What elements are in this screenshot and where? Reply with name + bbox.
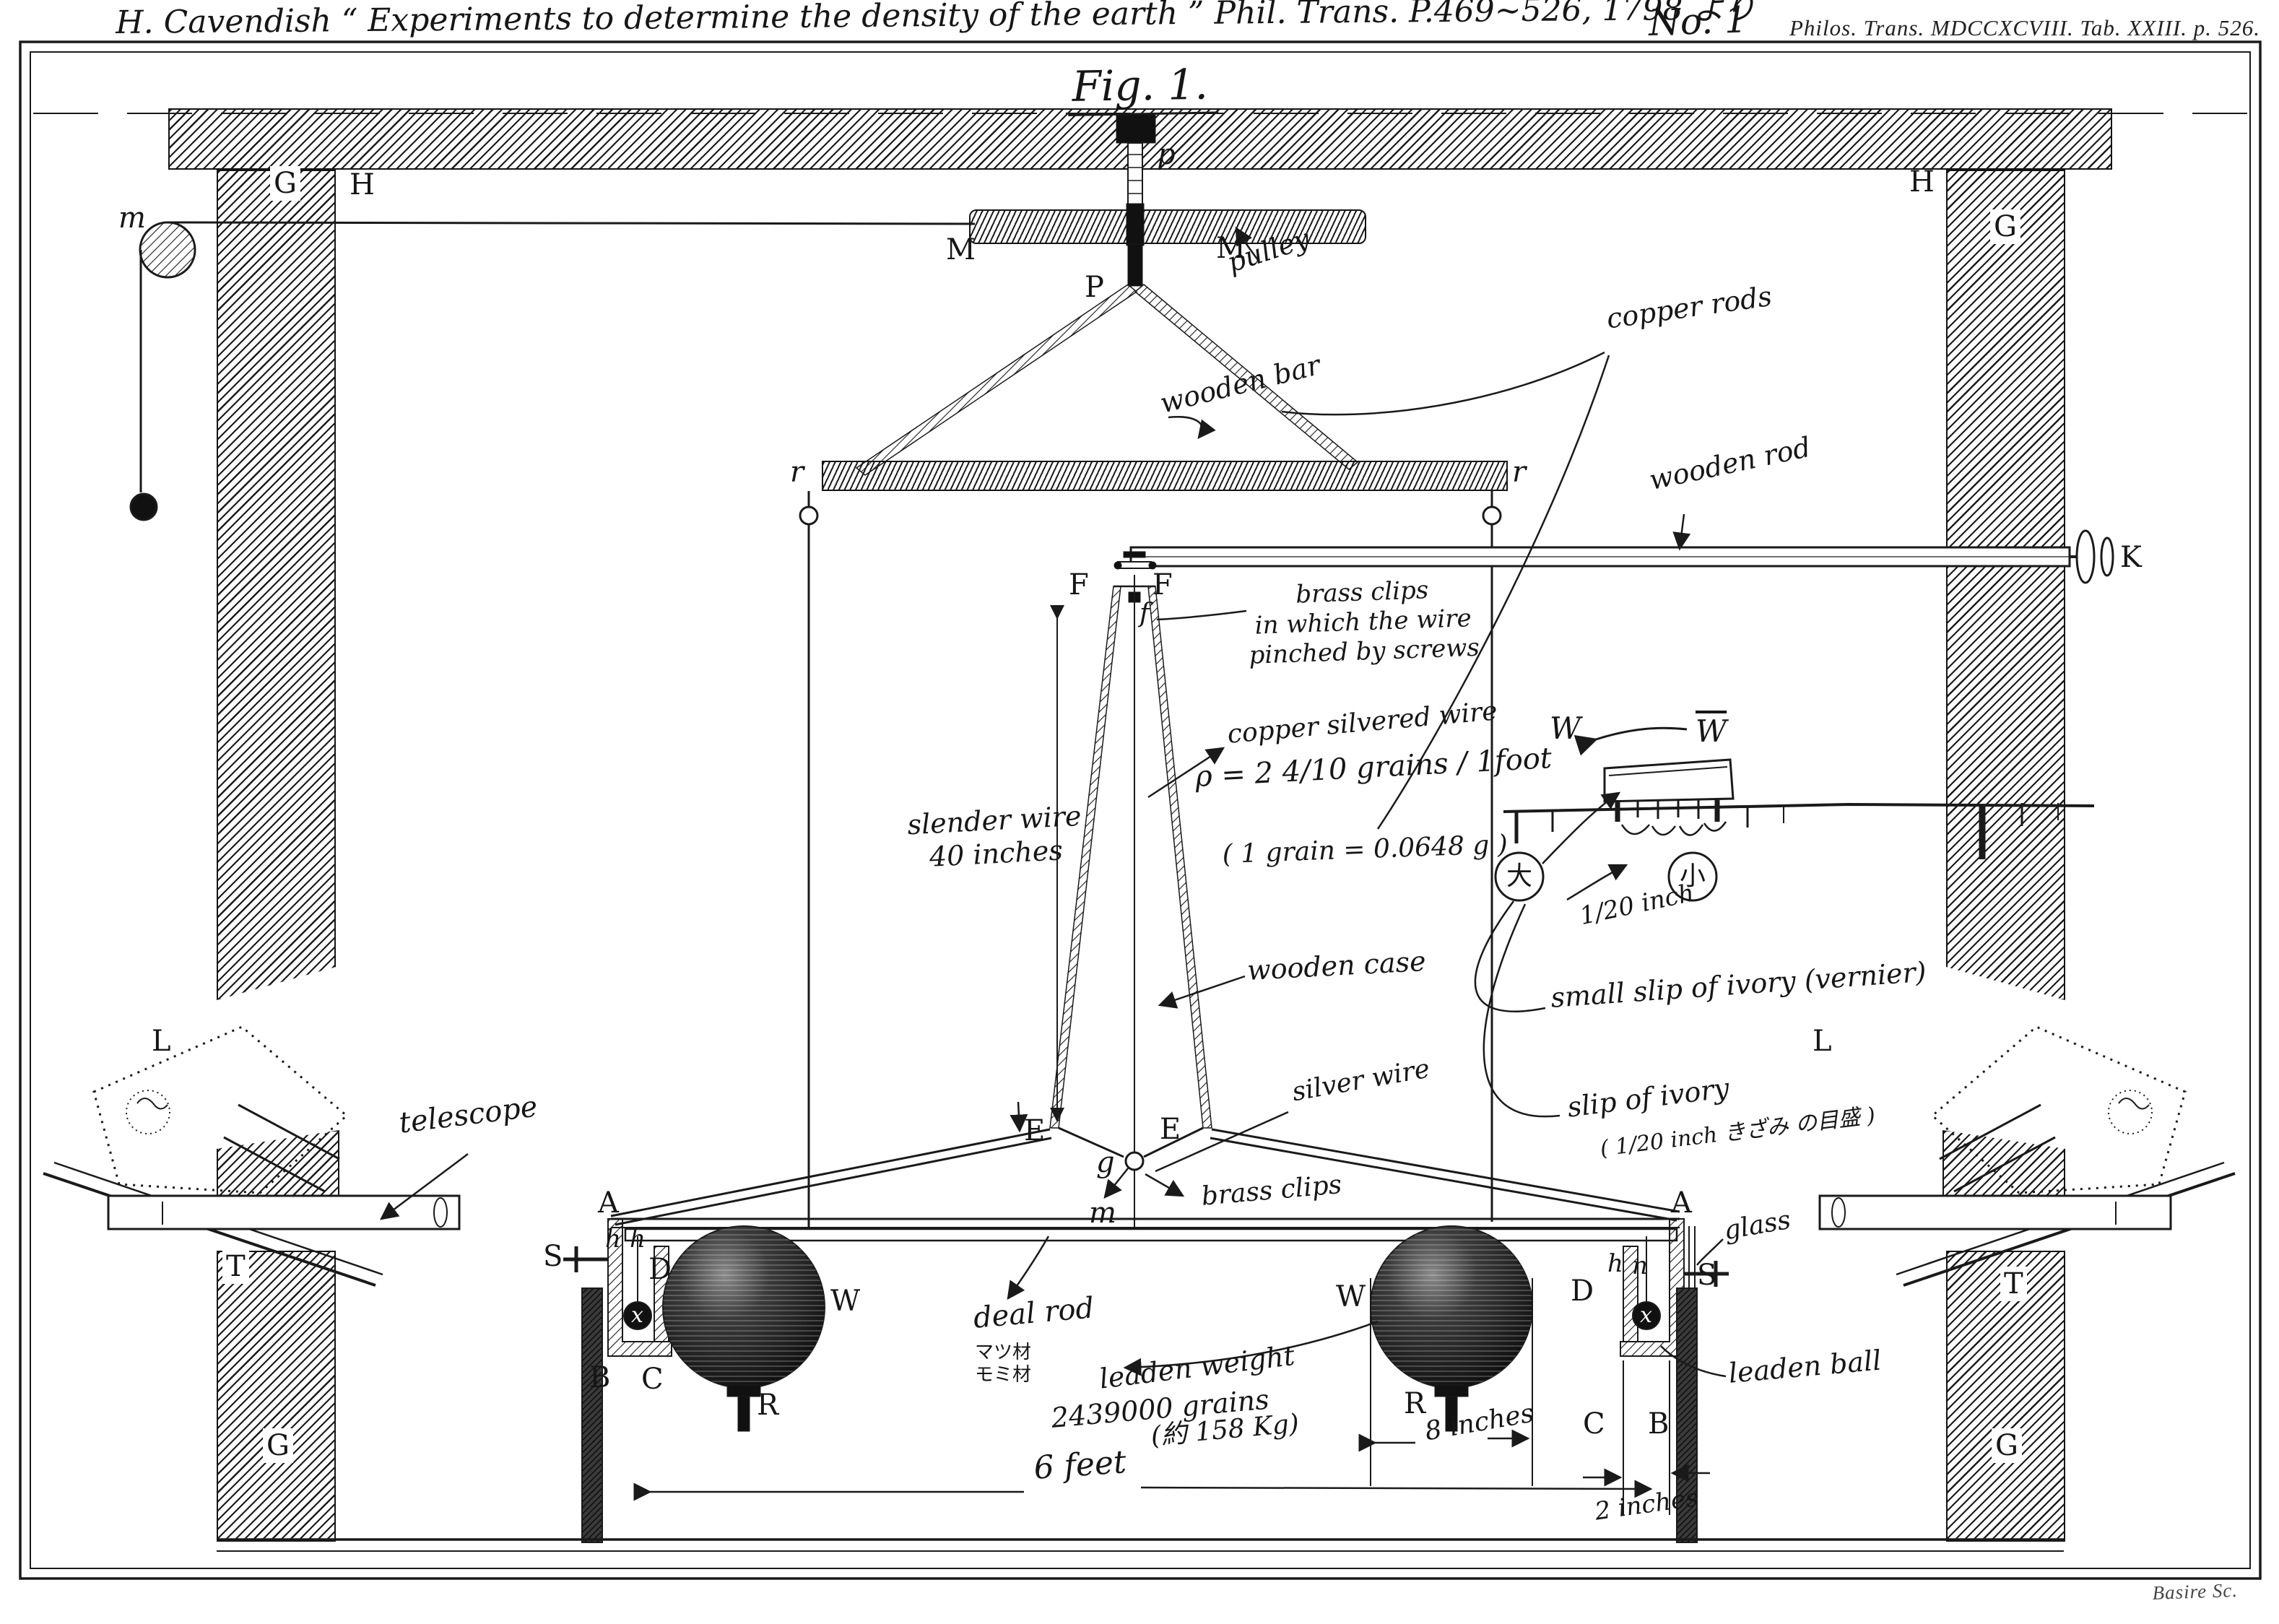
weight-label-w-left: W <box>830 1284 860 1319</box>
ball-label-x-right: x <box>1640 1303 1652 1329</box>
floor-lines <box>217 1540 2064 1551</box>
beam-center-label-m: m <box>1089 1196 1116 1230</box>
lamp-label-l-right: L <box>1813 1024 1832 1059</box>
vernier-label-w-wall: W <box>1696 713 1727 750</box>
wooden-rod <box>1131 531 2113 583</box>
wire-label-f: f <box>1139 598 1149 629</box>
plate-number: No. 1 <box>1648 0 1748 45</box>
clip-label-f-left: F <box>1069 568 1089 602</box>
screw-label-r-left: R <box>757 1388 778 1423</box>
pulley-cord-label-m: m <box>118 201 146 235</box>
balance-case <box>611 1102 1680 1241</box>
stirrup-label-g: g <box>1096 1145 1115 1180</box>
case-label-c-left: C <box>641 1362 664 1397</box>
case-label-a-left: A <box>598 1186 619 1220</box>
wall-label-g-bottom-left: G <box>263 1428 293 1463</box>
wall-label-t-left: T <box>222 1249 249 1284</box>
weight-label-w-right: W <box>1336 1280 1366 1314</box>
engraver-signature: Basire Sc. <box>2152 1579 2239 1605</box>
case-label-a-right: A <box>1671 1186 1692 1220</box>
screw-label-s-left: S <box>543 1239 563 1274</box>
figure-caption: Fig. 1. <box>1067 59 1218 116</box>
vernier-mark-small: 小 <box>1680 861 1706 892</box>
pulley-label-h-left-1: h <box>605 1225 621 1254</box>
case-label-e-left: E <box>1024 1113 1045 1148</box>
pulley-label-h-right: h <box>1607 1249 1623 1279</box>
top-screw-label-p: p <box>1157 137 1176 172</box>
vernier-detail <box>1475 728 2094 1116</box>
case-label-e-right: E <box>1160 1112 1181 1147</box>
pulley-label-n-right: n <box>1632 1251 1648 1281</box>
wall-label-h-top-left: H <box>350 168 375 202</box>
pulley-label-h-left-2: h <box>630 1225 646 1254</box>
pulley-bar-label-m-left: M <box>946 233 976 267</box>
clip-label-f-right: F <box>1152 568 1173 602</box>
annotation-deal-rod-material: マツ材 モミ材 <box>975 1342 1031 1386</box>
case-label-b-left: B <box>589 1360 610 1395</box>
case-label-c-right: C <box>1583 1407 1605 1441</box>
case-label-d-left: D <box>648 1252 672 1287</box>
wall-label-h-top-right: H <box>1909 165 1935 199</box>
rod-knob-label-k: K <box>2120 540 2142 575</box>
top-screw <box>1116 114 1155 286</box>
wall-label-g-top-right: G <box>1990 209 2020 244</box>
wall-label-g-top-left: G <box>270 166 300 201</box>
case-label-d-right: D <box>1571 1274 1594 1308</box>
case-label-b-right: B <box>1648 1407 1669 1441</box>
screw-label-s-right: S <box>1697 1258 1716 1293</box>
bar-end-label-r-left: r <box>790 455 804 490</box>
ball-label-x-left: x <box>631 1303 643 1329</box>
lamp-label-l-left: L <box>152 1024 171 1059</box>
cavendish-experiment-plate: H. Cavendish “ Experiments to determine … <box>0 0 2279 1624</box>
bar-end-label-r-right: r <box>1512 455 1526 490</box>
wall-label-g-bottom-right: G <box>1992 1428 2022 1463</box>
annotation-span-six-feet: 6 feet <box>1033 1443 1127 1488</box>
counterweight-pulley <box>131 222 975 520</box>
annotation-slender-wire: slender wire 40 inches <box>885 799 1105 876</box>
vernier-mark-large: 大 <box>1506 861 1532 892</box>
screw-label-r-right: R <box>1404 1386 1425 1421</box>
vernier-label-w-left: W <box>1550 711 1581 747</box>
printed-reference: Philos. Trans. MDCCXCVIII. Tab. XXIII. p… <box>1789 14 2260 41</box>
wall-label-t-right: T <box>2000 1267 2027 1301</box>
pulley-label-p: P <box>1085 270 1104 305</box>
annotation-brass-clips-upper: brass clips in which the wire pinched by… <box>1246 574 1480 670</box>
